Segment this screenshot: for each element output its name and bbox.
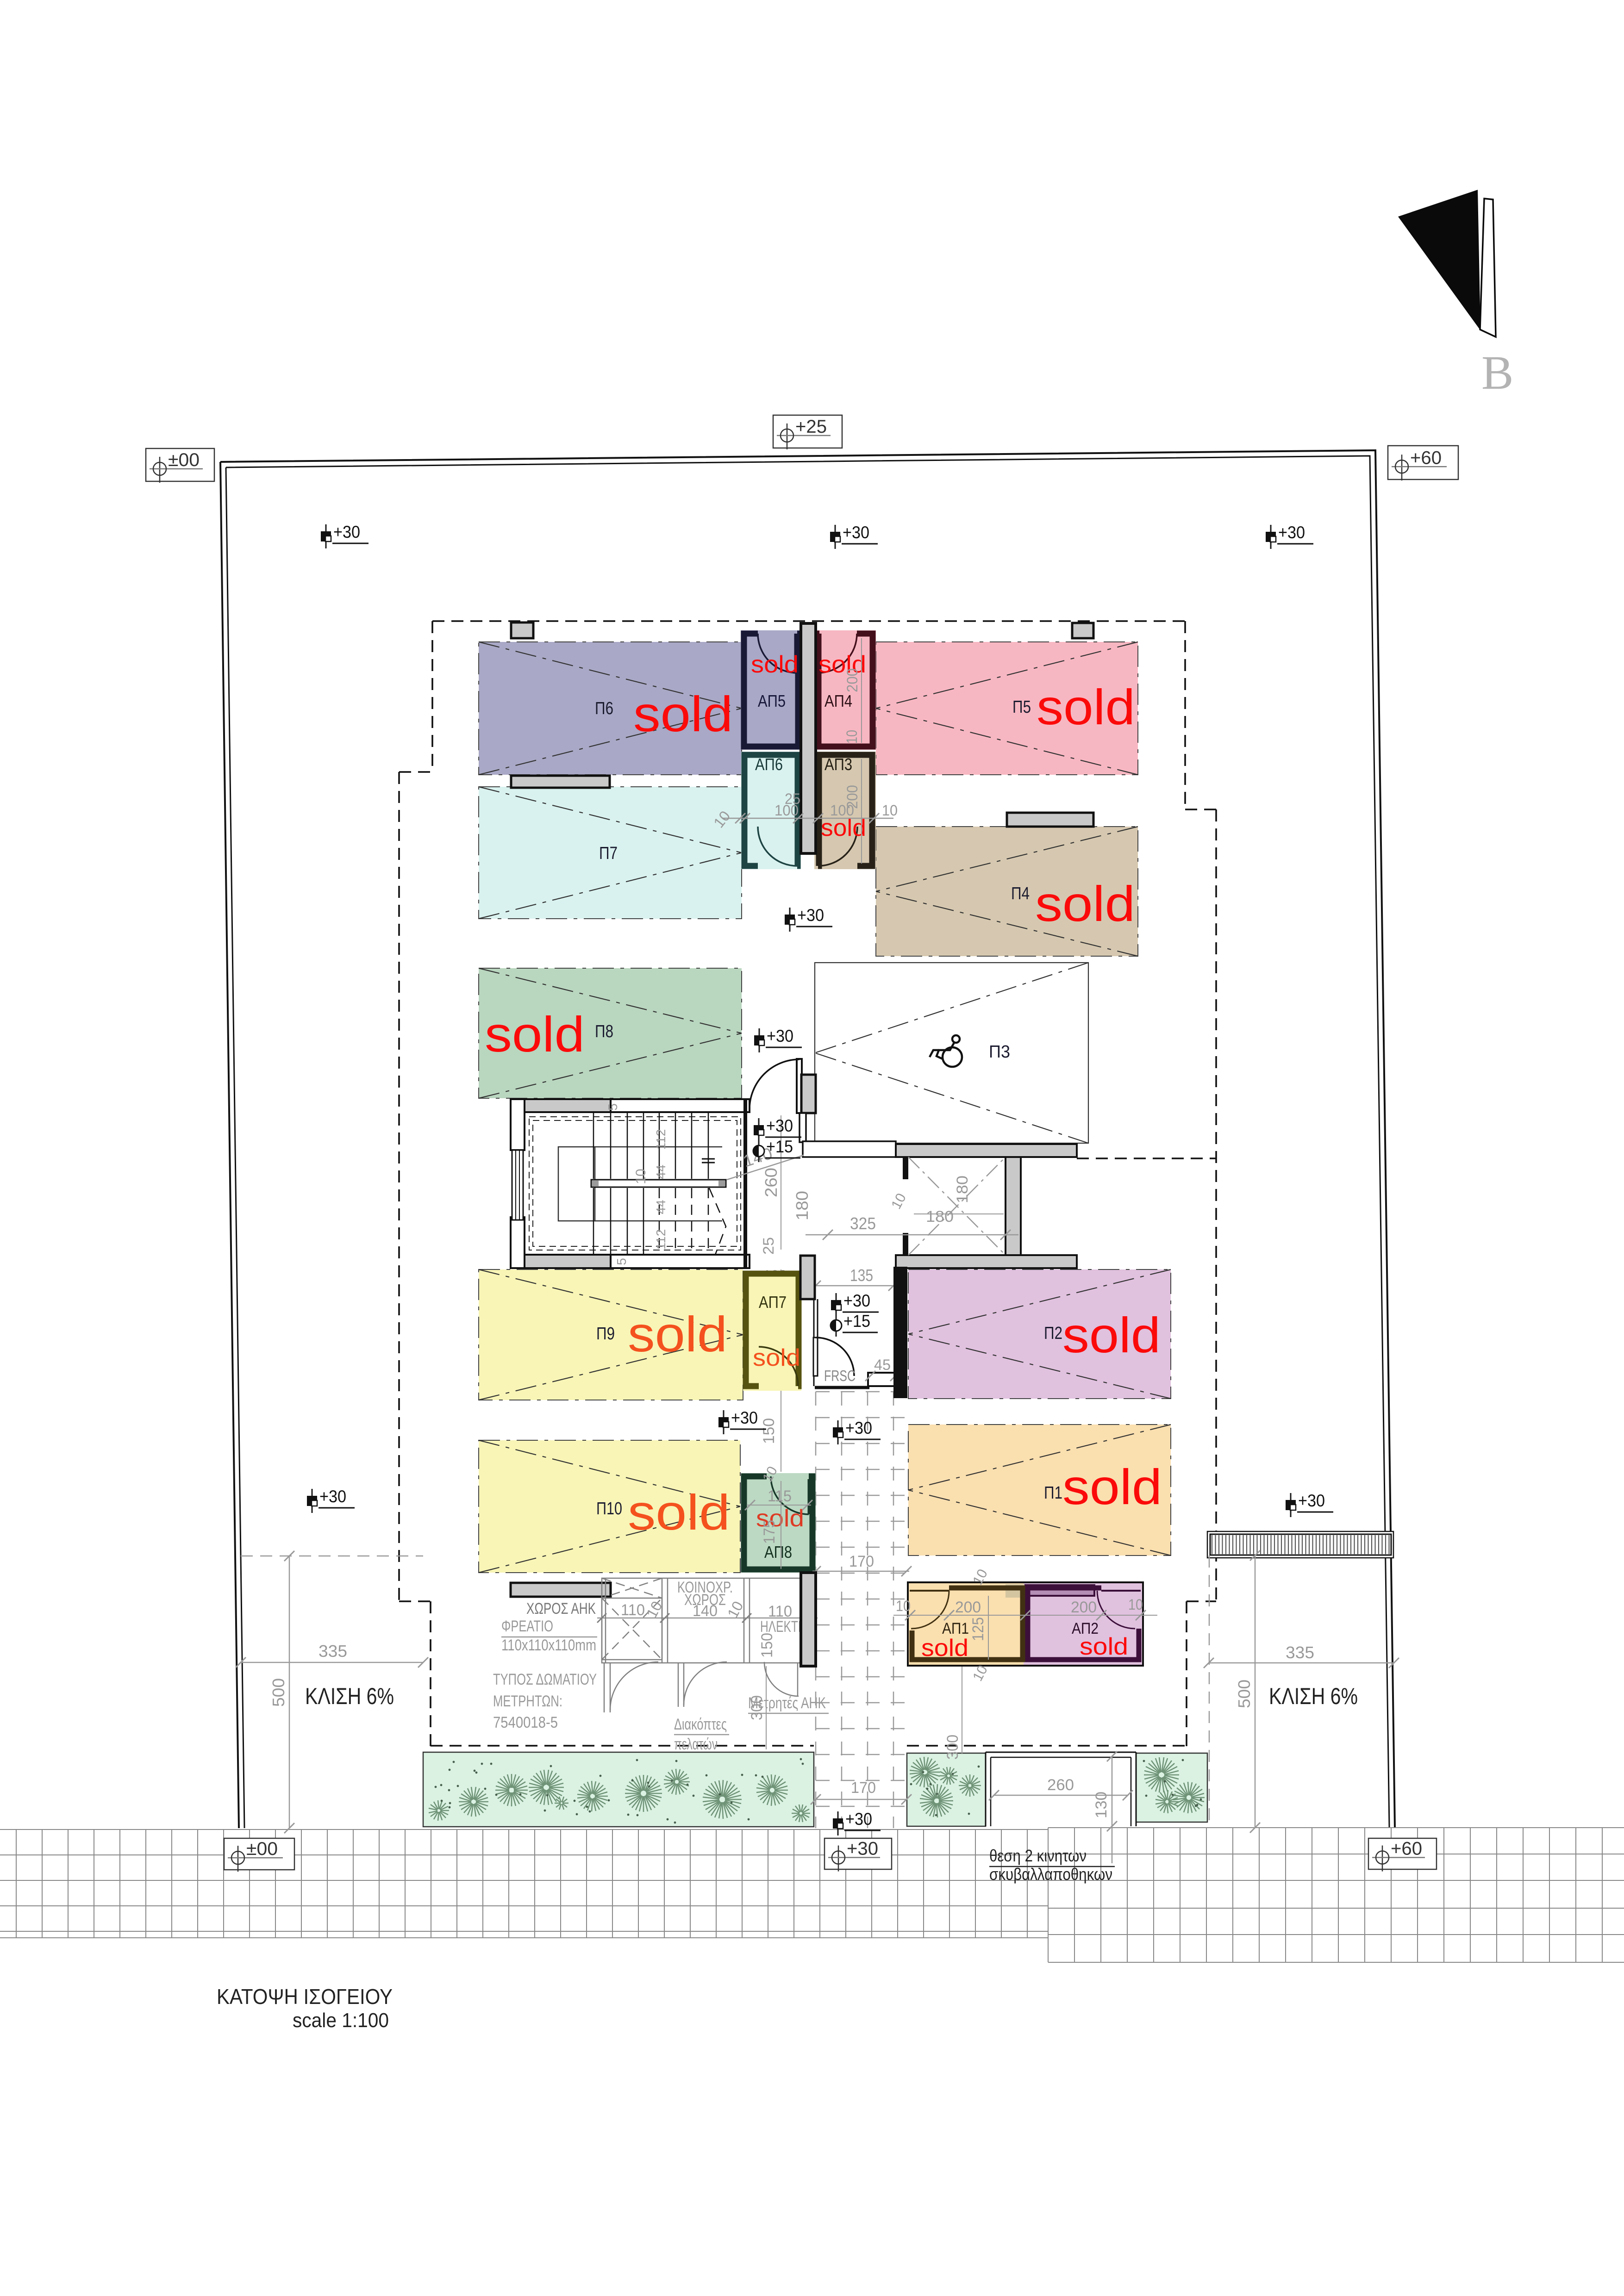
svg-text:+15: +15	[766, 1137, 793, 1156]
svg-text:10: 10	[843, 730, 860, 744]
svg-text:115: 115	[768, 1487, 792, 1505]
svg-text:scale 1:100: scale 1:100	[293, 2009, 389, 2032]
svg-text:Π1: Π1	[1044, 1483, 1062, 1503]
svg-text:Π8: Π8	[595, 1022, 613, 1041]
svg-text:ΑΠ5: ΑΠ5	[758, 691, 786, 710]
svg-text:170: 170	[849, 1553, 874, 1570]
svg-text:260: 260	[1047, 1776, 1074, 1794]
svg-text:ΤΥΠΟΣ ΔΩΜΑΤΙΟΥ: ΤΥΠΟΣ ΔΩΜΑΤΙΟΥ	[493, 1671, 597, 1688]
svg-text:5: 5	[606, 1103, 620, 1111]
svg-text:ΧΩΡΟΣ ΑΗΚ: ΧΩΡΟΣ ΑΗΚ	[526, 1600, 596, 1618]
svg-text:Μετρητές ΑΗΚ: Μετρητές ΑΗΚ	[748, 1694, 826, 1712]
svg-text:140: 140	[693, 1602, 718, 1620]
svg-text:Διακόπτες: Διακόπτες	[674, 1716, 727, 1733]
svg-text:ΑΠ8: ΑΠ8	[764, 1543, 792, 1562]
svg-text:ΚΛΙΣΗ 6%: ΚΛΙΣΗ 6%	[1269, 1683, 1358, 1709]
svg-text:sold: sold	[485, 1006, 585, 1062]
svg-text:+30: +30	[845, 1810, 872, 1829]
svg-text:325: 325	[850, 1214, 876, 1233]
svg-text:170: 170	[851, 1779, 876, 1797]
svg-text:260: 260	[762, 1168, 781, 1197]
svg-text:σκυβαλλαποθηκων: σκυβαλλαποθηκων	[989, 1865, 1112, 1884]
svg-text:sold: sold	[633, 686, 733, 742]
svg-text:335: 335	[319, 1642, 347, 1661]
svg-text:ΑΠ6: ΑΠ6	[755, 755, 783, 774]
svg-text:Π9: Π9	[596, 1324, 615, 1344]
svg-text:ΑΠ7: ΑΠ7	[759, 1293, 787, 1312]
svg-text:sold: sold	[1062, 1307, 1161, 1363]
svg-text:Π5: Π5	[1012, 697, 1031, 717]
svg-text:7540018-5: 7540018-5	[493, 1714, 558, 1731]
svg-text:ΑΠ4: ΑΠ4	[824, 691, 852, 710]
svg-text:44: 44	[654, 1200, 668, 1214]
svg-text:+30: +30	[333, 523, 360, 541]
svg-text:+25: +25	[795, 417, 827, 437]
svg-text:150: 150	[758, 1633, 776, 1658]
svg-text:150: 150	[760, 1418, 778, 1444]
svg-text:+60: +60	[1391, 1839, 1422, 1859]
svg-text:Π6: Π6	[595, 699, 613, 718]
svg-text:Π4: Π4	[1011, 884, 1030, 903]
svg-text:110: 110	[621, 1601, 645, 1619]
svg-text:+60: +60	[1410, 448, 1442, 468]
svg-text:+30: +30	[731, 1408, 758, 1427]
svg-text:Π2: Π2	[1044, 1324, 1062, 1343]
svg-text:+30: +30	[843, 523, 869, 542]
svg-text:25: 25	[760, 1237, 777, 1255]
svg-text:112: 112	[654, 1229, 668, 1250]
svg-text:sold: sold	[1062, 1459, 1162, 1515]
svg-text:300: 300	[944, 1735, 962, 1760]
svg-text:500: 500	[269, 1678, 288, 1707]
svg-text:10: 10	[1128, 1596, 1143, 1613]
svg-text:10: 10	[633, 1169, 649, 1184]
svg-text:180: 180	[926, 1208, 954, 1226]
svg-text:10: 10	[896, 1598, 911, 1614]
svg-text:ΑΠ3: ΑΠ3	[824, 755, 852, 774]
svg-text:sold: sold	[628, 1306, 727, 1362]
svg-text:ΜΕΤΡΗΤΩΝ:: ΜΕΤΡΗΤΩΝ:	[493, 1692, 562, 1710]
svg-text:+15: +15	[843, 1312, 870, 1331]
svg-text:+30: +30	[1278, 523, 1305, 542]
svg-text:+30: +30	[767, 1027, 793, 1045]
svg-text:45: 45	[874, 1356, 891, 1373]
svg-text:θεση 2 κινητων: θεση 2 κινητων	[989, 1846, 1087, 1865]
svg-text:+30: +30	[843, 1291, 870, 1310]
svg-text:±00: ±00	[246, 1839, 278, 1859]
svg-text:200: 200	[844, 668, 861, 692]
svg-text:200: 200	[844, 785, 861, 809]
svg-text:sold: sold	[921, 1635, 968, 1661]
svg-text:180: 180	[793, 1191, 812, 1220]
svg-text:+30: +30	[766, 1116, 793, 1135]
svg-text:sold: sold	[1037, 679, 1135, 735]
svg-text:ΦΡΕΑΤΙΟ: ΦΡΕΑΤΙΟ	[501, 1618, 553, 1635]
svg-text:175: 175	[761, 1520, 778, 1544]
svg-text:Π7: Π7	[599, 844, 618, 863]
svg-text:+30: +30	[845, 1419, 872, 1437]
svg-text:ΚΑΤΟΨΗ ΙΣΟΓΕΙΟΥ: ΚΑΤΟΨΗ ΙΣΟΓΕΙΟΥ	[217, 1985, 393, 2009]
svg-text:25: 25	[785, 790, 800, 807]
svg-text:sold: sold	[1080, 1633, 1128, 1660]
svg-text:200: 200	[1071, 1599, 1097, 1616]
svg-text:110x110x110mm: 110x110x110mm	[501, 1636, 596, 1654]
svg-text:ΚΛΙΣΗ 6%: ΚΛΙΣΗ 6%	[305, 1683, 394, 1709]
svg-text:200: 200	[955, 1599, 981, 1616]
svg-text:FRSC: FRSC	[824, 1367, 856, 1384]
svg-text:500: 500	[1235, 1680, 1254, 1708]
svg-text:130: 130	[1093, 1792, 1110, 1818]
svg-text:B: B	[1481, 346, 1513, 399]
svg-text:+30: +30	[847, 1839, 878, 1859]
svg-text:5: 5	[614, 1258, 629, 1265]
svg-text:Π10: Π10	[596, 1499, 622, 1518]
svg-text:+30: +30	[319, 1487, 346, 1506]
svg-text:sold: sold	[1035, 876, 1135, 932]
svg-text:335: 335	[1286, 1643, 1314, 1662]
svg-text:112: 112	[654, 1129, 668, 1150]
svg-text:10: 10	[882, 802, 898, 819]
svg-text:sold: sold	[753, 1344, 800, 1371]
svg-text:44: 44	[654, 1164, 668, 1179]
svg-text:135: 135	[850, 1266, 873, 1285]
svg-text:πελατών: πελατών	[674, 1736, 718, 1753]
svg-text:sold: sold	[751, 651, 799, 678]
svg-text:sold: sold	[628, 1484, 730, 1540]
svg-text:180: 180	[954, 1176, 971, 1203]
svg-text:±00: ±00	[168, 450, 200, 470]
svg-text:+30: +30	[1298, 1491, 1325, 1510]
svg-text:Π3: Π3	[989, 1042, 1010, 1062]
svg-text:125: 125	[969, 1617, 987, 1641]
svg-text:+30: +30	[797, 906, 824, 925]
